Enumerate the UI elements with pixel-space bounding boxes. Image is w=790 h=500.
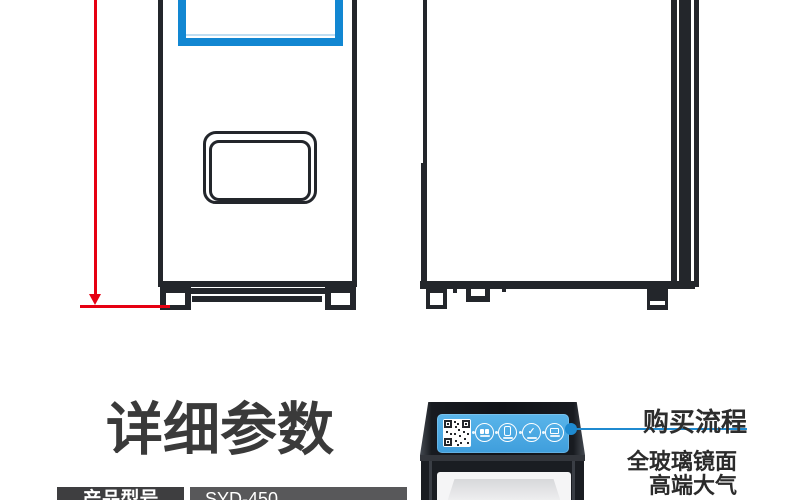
step-caption-bar xyxy=(527,437,537,439)
spec-value-cell: SYD-450 xyxy=(190,487,407,500)
product-detail-image: 详细参数 产品型号 SYD-450 xyxy=(0,0,790,500)
front-screen-reflection xyxy=(186,34,335,36)
machine-display-screen xyxy=(437,472,571,500)
confirm-check-icon: ✓ xyxy=(522,423,541,442)
dimension-line-vertical xyxy=(94,0,97,296)
goods-glyph xyxy=(550,428,559,434)
machine-right-bevel xyxy=(572,461,575,500)
scan-pay-glyph xyxy=(480,429,489,434)
check-glyph: ✓ xyxy=(528,427,536,436)
side-foot-right-slit xyxy=(650,301,665,305)
section-title: 详细参数 xyxy=(96,398,344,464)
purchase-flow-label: 购买流程 xyxy=(590,402,747,439)
feature-line-2: 高端大气 xyxy=(597,474,737,498)
machine-left-bevel xyxy=(429,461,432,500)
spec-table-row: 产品型号 SYD-450 xyxy=(57,487,407,500)
pickup-goods-icon xyxy=(545,423,564,442)
scan-pay-icon xyxy=(475,423,494,442)
side-base-tick-2 xyxy=(502,289,506,292)
screen-perspective-shade xyxy=(448,479,561,500)
side-foot-left xyxy=(426,289,447,309)
front-right-edge xyxy=(352,0,357,287)
step-caption-bar xyxy=(480,435,490,437)
side-bottom-edge xyxy=(420,281,695,289)
front-base-rail-lower xyxy=(192,296,322,302)
feature-text-block: 全玻璃镜面 高端大气 xyxy=(597,450,737,498)
step-caption-bar xyxy=(550,435,560,437)
side-door-outer-bar xyxy=(694,0,699,287)
spec-label-cell: 产品型号 xyxy=(57,487,184,500)
front-base-rail xyxy=(166,288,346,294)
purchase-flow-sticker: ✓ xyxy=(437,414,569,453)
qr-code-icon xyxy=(443,419,471,447)
feature-line-1: 全玻璃镜面 xyxy=(597,450,737,474)
phone-glyph xyxy=(504,426,511,436)
side-door-edge-bar xyxy=(671,0,691,288)
pickup-hatch-inner xyxy=(209,140,311,201)
front-foot-right-inner xyxy=(331,293,350,305)
front-screen-inner xyxy=(186,0,335,38)
dimension-line-horizontal xyxy=(80,305,170,308)
side-left-edge-upper xyxy=(423,0,427,164)
side-base-tick-1 xyxy=(453,289,457,293)
side-base-bracket-notch xyxy=(471,289,485,296)
front-left-edge xyxy=(158,0,163,287)
side-foot-right xyxy=(647,289,668,310)
side-left-edge-lower xyxy=(421,163,427,288)
phone-order-icon xyxy=(498,423,517,442)
front-foot-left-inner xyxy=(166,293,185,305)
dimension-arrow-down xyxy=(89,294,101,305)
step-caption-bar xyxy=(503,437,513,439)
side-door-edge-highlight xyxy=(677,0,679,283)
